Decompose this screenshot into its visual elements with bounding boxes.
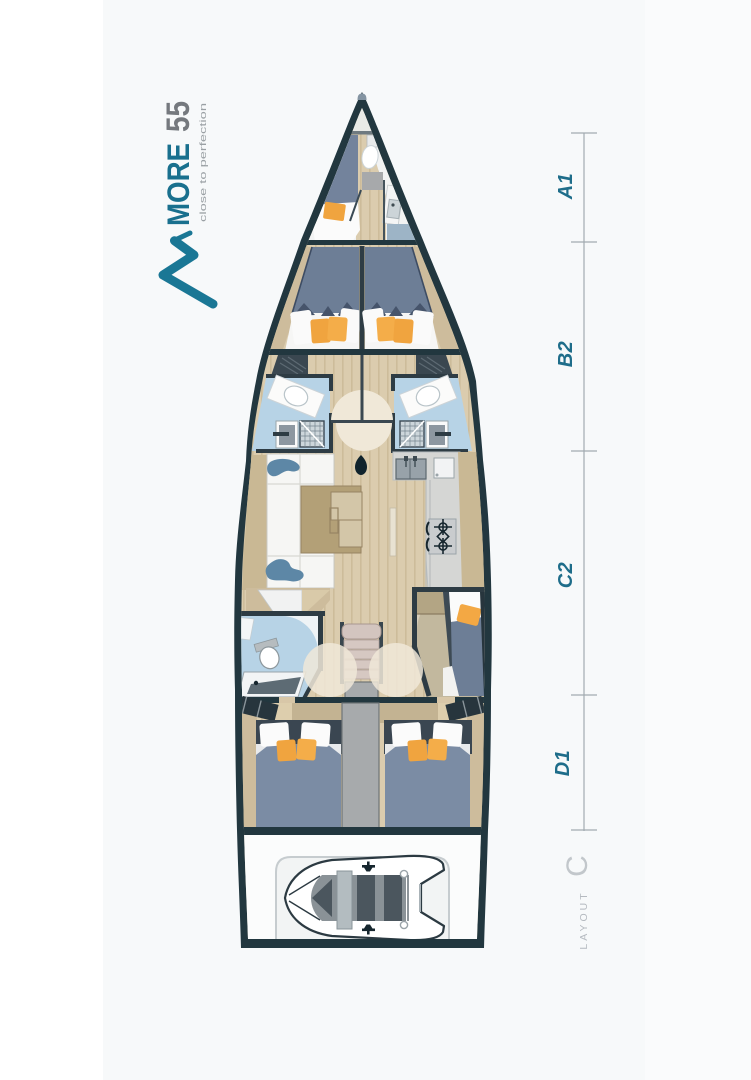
svg-text:A1: A1 [555, 173, 577, 201]
svg-text:B2: B2 [555, 341, 577, 368]
svg-text:close to perfection: close to perfection [198, 103, 208, 222]
svg-text:MORE: MORE [160, 143, 196, 226]
svg-text:LAYOUT: LAYOUT [578, 890, 590, 949]
svg-text:C2: C2 [555, 562, 577, 589]
svg-text:C: C [561, 855, 594, 877]
svg-text:55: 55 [160, 101, 196, 132]
svg-text:D1: D1 [552, 750, 574, 777]
